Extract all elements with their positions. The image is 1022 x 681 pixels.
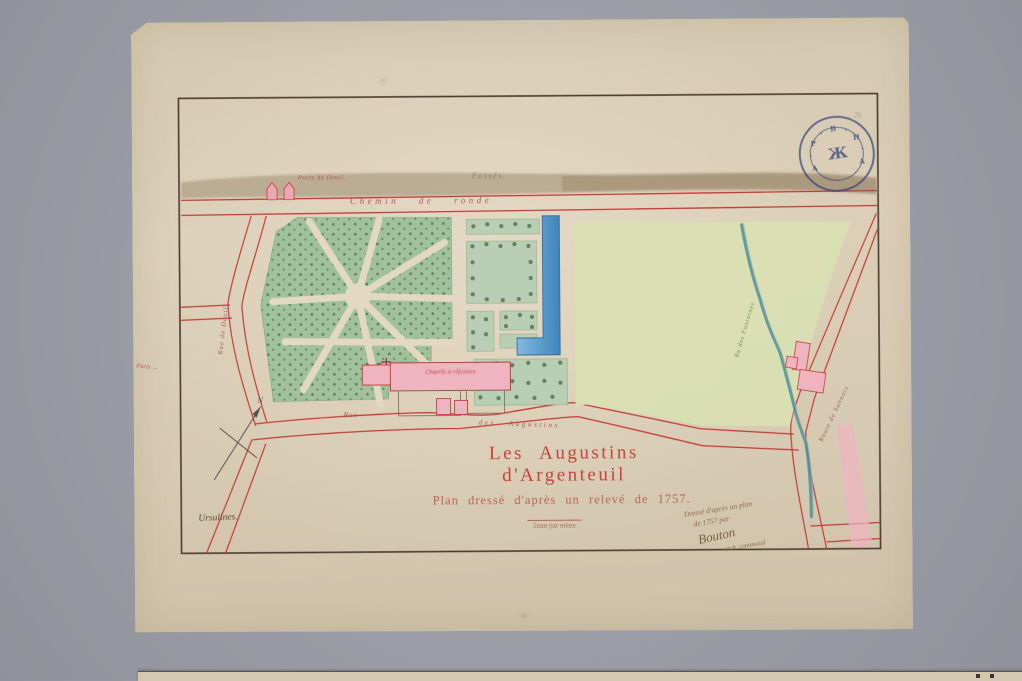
stamp-ring-letter: · [856, 142, 867, 153]
map-sheet: N Porte de Deuil. Fossés. Chemin de rond… [131, 17, 913, 634]
meadow-field [574, 220, 852, 428]
stamp-ring-letter: A [809, 162, 820, 173]
garden-circle [345, 283, 371, 309]
road-rue-de-deuil [179, 216, 268, 554]
stamp-ring-letter: B [827, 122, 838, 133]
scale-text: 1mm par mètre [527, 520, 582, 530]
stamp-ring-letter: · [805, 150, 816, 161]
photo-backdrop: N Porte de Deuil. Fossés. Chemin de rond… [0, 0, 1022, 680]
foxing-spot [521, 614, 527, 618]
scale-note: 1mm par mètre [506, 519, 602, 530]
map-title: Les Augustins d'Argenteuil [422, 442, 706, 488]
foxing-spot [381, 79, 385, 82]
stamp-ring-letter: · [818, 171, 829, 182]
stamp-ring-letter: H [851, 131, 862, 142]
north-label: N [256, 396, 263, 405]
stamp-ring-letter: A [856, 155, 867, 166]
stamp-ring-letter: · [840, 124, 851, 135]
strip-mark [990, 674, 994, 678]
stamp-ring-letter: · [850, 166, 861, 177]
foxing-spot [655, 635, 663, 640]
stamp-ring-letter: P [808, 137, 819, 148]
stamp-ring-letter: · [816, 127, 827, 138]
strip-mark [976, 674, 980, 678]
map-subtitle: Plan dressé d'après un relevé de 1757. [409, 492, 714, 509]
